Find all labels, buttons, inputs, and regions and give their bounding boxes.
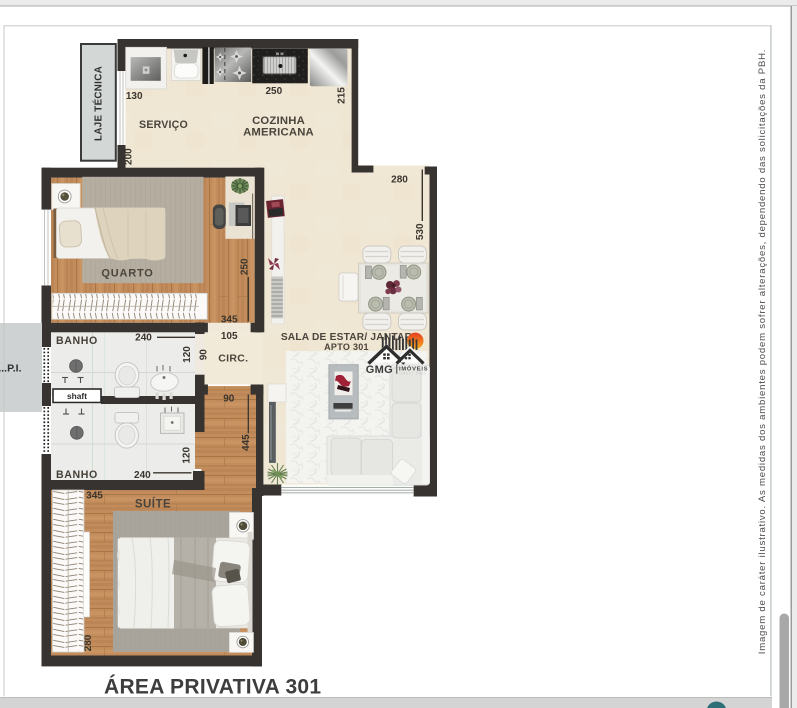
svg-text:90: 90 — [198, 349, 209, 361]
svg-text:530: 530 — [415, 223, 426, 240]
svg-text:LAJE TÉCNICA: LAJE TÉCNICA — [93, 66, 105, 141]
svg-text:GMG: GMG — [366, 364, 393, 376]
svg-text:105: 105 — [221, 331, 238, 342]
svg-text:130: 130 — [126, 91, 143, 102]
svg-text:CRECI 5953: CRECI 5953 — [400, 372, 427, 376]
svg-text:BANHO: BANHO — [56, 335, 98, 347]
svg-text:200: 200 — [124, 148, 135, 165]
svg-text:345: 345 — [221, 314, 238, 325]
svg-text:CIRC.: CIRC. — [218, 353, 248, 365]
svg-text:APTO 301: APTO 301 — [324, 342, 369, 352]
svg-text:345: 345 — [86, 491, 103, 502]
svg-text:215: 215 — [337, 87, 348, 104]
svg-text:COZINHA: COZINHA — [252, 115, 305, 127]
svg-text:QUARTO: QUARTO — [101, 268, 153, 280]
svg-text:ÁREA PRIVATIVA 301: ÁREA PRIVATIVA 301 — [104, 676, 321, 699]
svg-text:90: 90 — [223, 393, 235, 404]
svg-text:280: 280 — [83, 634, 94, 651]
svg-text:280: 280 — [391, 175, 408, 186]
svg-text:shaft: shaft — [67, 391, 87, 401]
svg-text:240: 240 — [134, 470, 151, 481]
svg-text:...P.I.: ...P.I. — [0, 362, 22, 374]
svg-text:250: 250 — [265, 86, 282, 97]
svg-text:445: 445 — [241, 434, 252, 451]
svg-text:SERVIÇO: SERVIÇO — [139, 119, 188, 131]
svg-text:250: 250 — [240, 258, 251, 275]
svg-text:AMERICANA: AMERICANA — [243, 127, 314, 139]
svg-text:120: 120 — [181, 447, 192, 464]
svg-text:BANHO: BANHO — [56, 469, 98, 481]
svg-text:SUÍTE: SUÍTE — [135, 498, 171, 511]
svg-text:Imagem de caráter ilustrativo.: Imagem de caráter ilustrativo. As medida… — [757, 49, 768, 654]
svg-text:120: 120 — [182, 346, 193, 363]
svg-text:240: 240 — [135, 333, 152, 344]
